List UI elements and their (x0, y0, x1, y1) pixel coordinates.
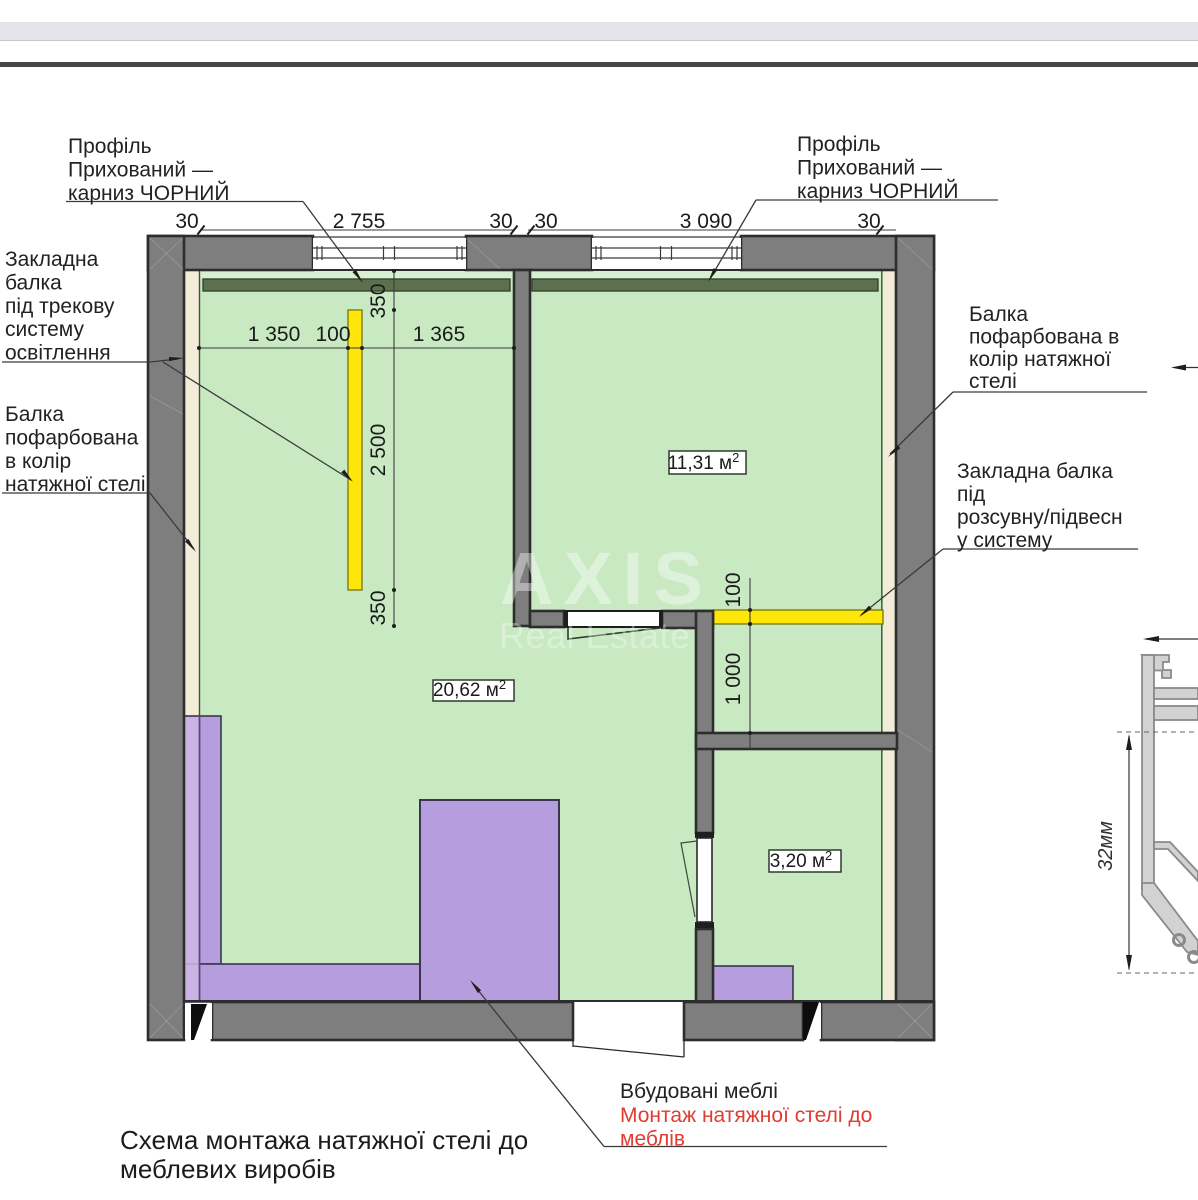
svg-text:Real Estate: Real Estate (499, 615, 691, 656)
svg-text:колір натяжної: колір натяжної (969, 348, 1111, 371)
svg-text:карниз ЧОРНИЙ: карниз ЧОРНИЙ (68, 181, 230, 205)
svg-text:20,62 м2: 20,62 м2 (433, 677, 506, 701)
svg-text:Вбудовані меблі: Вбудовані меблі (620, 1080, 778, 1103)
svg-text:100: 100 (722, 572, 745, 607)
svg-text:в колір: в колір (5, 450, 71, 473)
svg-text:32мм: 32мм (1095, 821, 1117, 871)
svg-text:під трекову: під трекову (5, 295, 115, 318)
svg-text:11,31 м2: 11,31 м2 (668, 450, 740, 474)
svg-text:Закладна балка: Закладна балка (957, 460, 1113, 483)
svg-text:стелі: стелі (969, 370, 1017, 393)
svg-text:меблів: меблів (620, 1127, 685, 1150)
svg-text:Балка: Балка (969, 303, 1028, 326)
svg-text:1 365: 1 365 (413, 323, 466, 346)
svg-text:30: 30 (857, 210, 880, 233)
svg-text:натяжної стелі: натяжної стелі (5, 473, 146, 496)
svg-text:під: під (957, 483, 985, 506)
svg-text:100: 100 (315, 323, 350, 346)
svg-text:освітлення: освітлення (5, 342, 111, 365)
svg-text:1 350: 1 350 (248, 323, 301, 346)
svg-text:у систему: у систему (957, 529, 1053, 552)
svg-text:балка: балка (5, 271, 62, 294)
svg-text:2 755: 2 755 (333, 210, 386, 233)
svg-text:Балка: Балка (5, 403, 64, 426)
svg-text:30: 30 (175, 210, 198, 233)
svg-text:AXIS: AXIS (500, 537, 713, 620)
svg-text:меблевих виробів: меблевих виробів (120, 1154, 336, 1184)
svg-text:2 500: 2 500 (367, 424, 390, 477)
svg-text:розсувну/підвесн: розсувну/підвесн (957, 506, 1123, 529)
svg-text:Профіль: Профіль (797, 133, 881, 156)
svg-text:Прихований —: Прихований — (797, 156, 942, 179)
svg-text:30: 30 (534, 210, 557, 233)
svg-text:Закладна: Закладна (5, 248, 99, 271)
svg-text:Профіль: Профіль (68, 135, 152, 158)
svg-text:3 090: 3 090 (680, 210, 733, 233)
svg-text:пофарбована в: пофарбована в (969, 325, 1119, 348)
svg-text:350: 350 (367, 590, 390, 625)
svg-text:систему: систему (5, 318, 84, 341)
svg-text:1 000: 1 000 (722, 653, 745, 706)
svg-text:3,20 м2: 3,20 м2 (770, 848, 833, 872)
svg-text:пофарбована: пофарбована (5, 426, 139, 449)
svg-text:Монтаж натяжної стелі до: Монтаж натяжної стелі до (620, 1104, 872, 1127)
svg-text:карниз ЧОРНИЙ: карниз ЧОРНИЙ (797, 179, 959, 203)
svg-text:Прихований —: Прихований — (68, 158, 213, 181)
svg-text:Схема монтажа натяжної стелі д: Схема монтажа натяжної стелі до (120, 1125, 528, 1155)
svg-text:350: 350 (367, 283, 390, 318)
svg-text:30: 30 (489, 210, 512, 233)
